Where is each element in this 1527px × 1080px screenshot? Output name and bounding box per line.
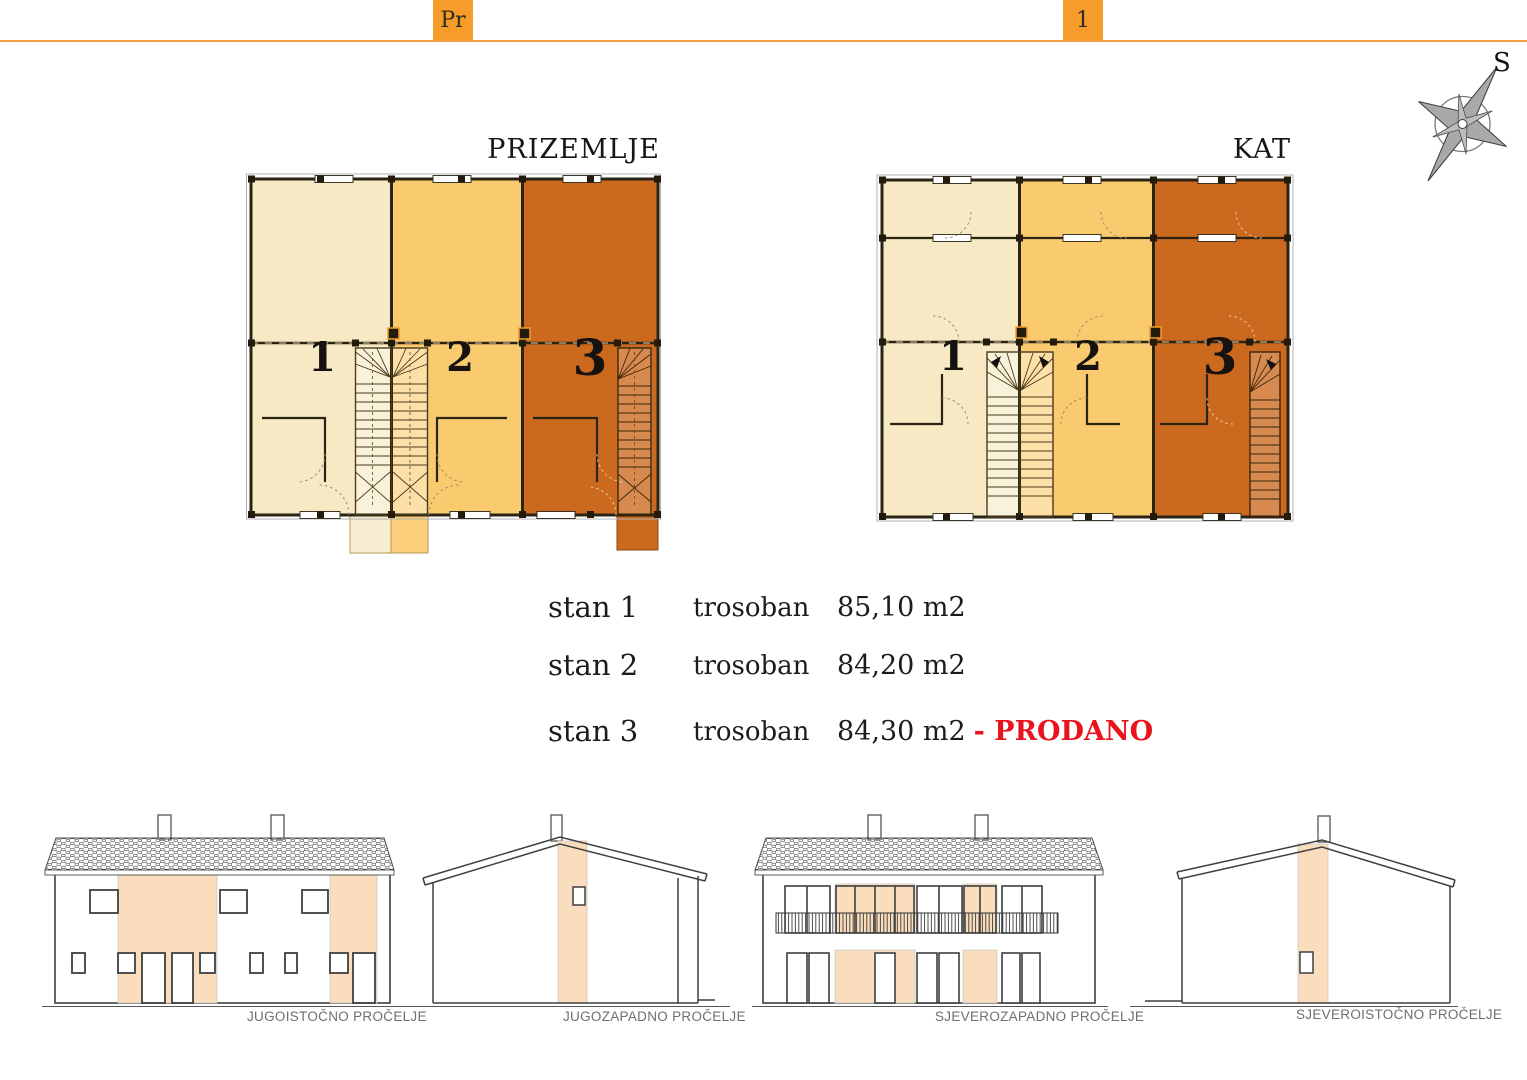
unit-number-2: 2	[446, 334, 474, 381]
apartment-name: stan 3	[548, 714, 638, 748]
unit-number-3: 3	[1203, 327, 1238, 386]
apartment-type: trosoban	[693, 593, 809, 623]
ground-line	[42, 1006, 730, 1007]
apartment-row: stan 1 trosoban 85,10 m2	[0, 590, 1527, 634]
floor-plan-prizemlje: 1 2 3	[245, 172, 665, 554]
sold-badge: - PRODANO	[974, 716, 1153, 747]
floor-tab-kat[interactable]: 1	[1063, 0, 1103, 40]
apartment-row: stan 2 trosoban 84,20 m2	[0, 648, 1527, 692]
apartment-area: 84,30 m2- PRODANO	[837, 716, 1153, 747]
elevation-caption-sjeveroistocno: SJEVEROISTOČNO PROČELJE	[1296, 1007, 1502, 1022]
upper-floor-title: KAT	[991, 134, 1291, 165]
unit-number-2: 2	[1074, 333, 1102, 380]
unit-number-1: 1	[308, 334, 336, 381]
floor-plan-kat: 1 2 3	[873, 172, 1295, 524]
compass-rose-icon: S	[1405, 43, 1517, 198]
compass-north-label: S	[1493, 48, 1511, 78]
elevation-jugozapadno	[415, 800, 715, 1010]
unit-number-3: 3	[573, 328, 608, 387]
apartment-name: stan 2	[548, 648, 638, 682]
prizemlje-porches	[350, 515, 658, 553]
apartment-area: 84,20 m2	[837, 650, 974, 681]
floor-tab-prizemlje[interactable]: Pr	[433, 0, 473, 40]
ground-line	[752, 1006, 1108, 1007]
apartment-type: trosoban	[693, 717, 809, 747]
elevation-jugoistocno	[25, 800, 395, 1010]
apartment-name: stan 1	[548, 590, 638, 624]
elevation-caption-jugoistocno: JUGOISTOČNO PROČELJE	[247, 1009, 427, 1024]
apartment-row: stan 3 trosoban 84,30 m2- PRODANO	[0, 714, 1527, 758]
facade-window	[573, 887, 585, 905]
apartment-area: 85,10 m2	[837, 592, 974, 623]
apartment-type: trosoban	[693, 651, 809, 681]
brochure-page: Pr 1 S PRIZEMLJE KAT	[0, 0, 1527, 1080]
elevation-caption-jugozapadno: JUGOZAPADNO PROČELJE	[563, 1009, 746, 1024]
elevation-sjeverozapadno	[740, 800, 1110, 1010]
elevation-caption-sjeverozapadno: SJEVEROZAPADNO PROČELJE	[935, 1009, 1144, 1024]
facade-window	[1300, 952, 1313, 973]
top-rule	[0, 40, 1527, 42]
elevation-sjeveroistocno	[1145, 800, 1485, 1010]
balcony-railing	[776, 913, 1058, 933]
ground-floor-title: PRIZEMLJE	[360, 134, 660, 165]
unit-number-1: 1	[939, 333, 967, 380]
